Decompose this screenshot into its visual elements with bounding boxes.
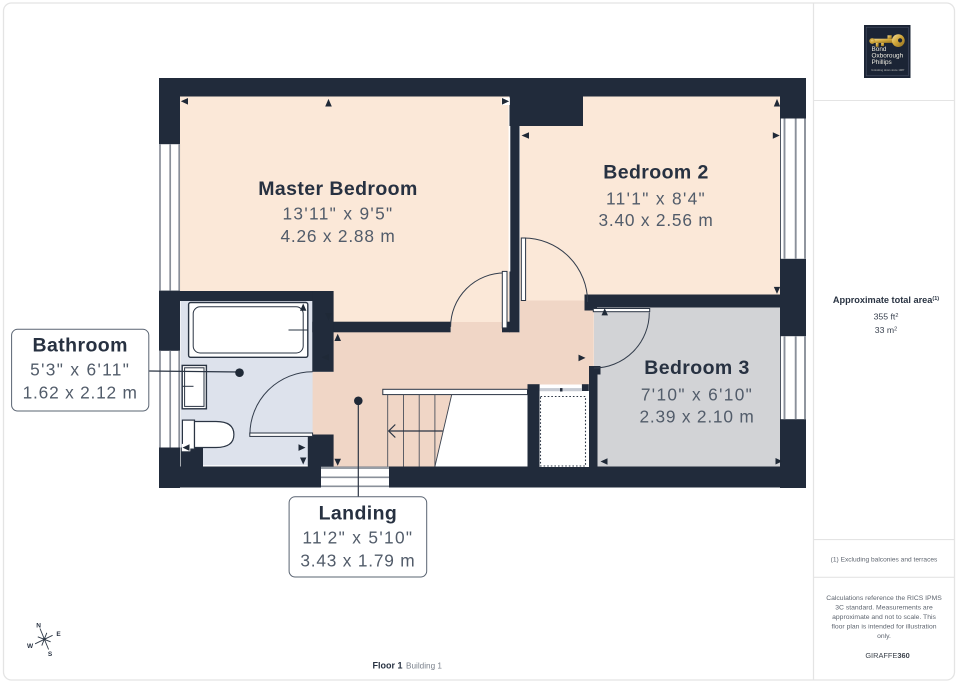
svg-text:4.26 x 2.88 m: 4.26 x 2.88 m: [280, 226, 395, 246]
svg-text:2.39 x 2.10 m: 2.39 x 2.10 m: [639, 407, 754, 427]
svg-text:W: W: [27, 643, 34, 650]
svg-text:3.43 x 1.79 m: 3.43 x 1.79 m: [300, 551, 415, 571]
svg-text:Bedroom 2: Bedroom 2: [603, 161, 708, 183]
svg-text:(1) Excluding balconies and te: (1) Excluding balconies and terraces: [831, 557, 938, 564]
svg-text:Landing: Landing: [319, 503, 398, 525]
svg-text:3.40 x 2.56 m: 3.40 x 2.56 m: [598, 210, 713, 230]
svg-text:Floor 1: Floor 1: [373, 661, 403, 671]
svg-text:3C standard. Measurements are: 3C standard. Measurements are: [835, 605, 933, 612]
svg-text:only.: only.: [877, 633, 891, 640]
svg-text:floor plan is intended for ill: floor plan is intended for illustration: [831, 624, 936, 631]
svg-text:Calculations reference the RIC: Calculations reference the RICS IPMS: [826, 595, 942, 602]
svg-text:E: E: [56, 631, 61, 638]
svg-text:5'3" x 6'11": 5'3" x 6'11": [30, 359, 130, 379]
svg-text:Master Bedroom: Master Bedroom: [258, 178, 417, 200]
svg-text:GIRAFFE360: GIRAFFE360: [865, 651, 909, 660]
svg-text:355 ft2: 355 ft2: [874, 312, 899, 322]
svg-text:Bathroom: Bathroom: [33, 335, 128, 357]
svg-text:13'11" x 9'5": 13'11" x 9'5": [282, 204, 393, 224]
svg-text:Unlocking doors since 1987: Unlocking doors since 1987: [871, 68, 905, 72]
svg-text:Approximate total area(1): Approximate total area(1): [833, 295, 939, 305]
svg-text:11'1" x 8'4": 11'1" x 8'4": [606, 188, 706, 208]
svg-text:Phillips: Phillips: [872, 59, 892, 66]
svg-text:7'10" x 6'10": 7'10" x 6'10": [641, 385, 753, 405]
svg-text:11'2" x 5'10": 11'2" x 5'10": [302, 528, 413, 548]
svg-text:approximate and not to scale.: approximate and not to scale. This: [832, 614, 936, 621]
svg-text:Bedroom 3: Bedroom 3: [644, 357, 749, 379]
svg-text:1.62 x 2.12 m: 1.62 x 2.12 m: [23, 382, 138, 402]
svg-text:Building 1: Building 1: [406, 662, 442, 671]
svg-text:33 m2: 33 m2: [875, 325, 897, 335]
svg-text:S: S: [48, 651, 53, 658]
svg-text:N: N: [36, 623, 41, 630]
